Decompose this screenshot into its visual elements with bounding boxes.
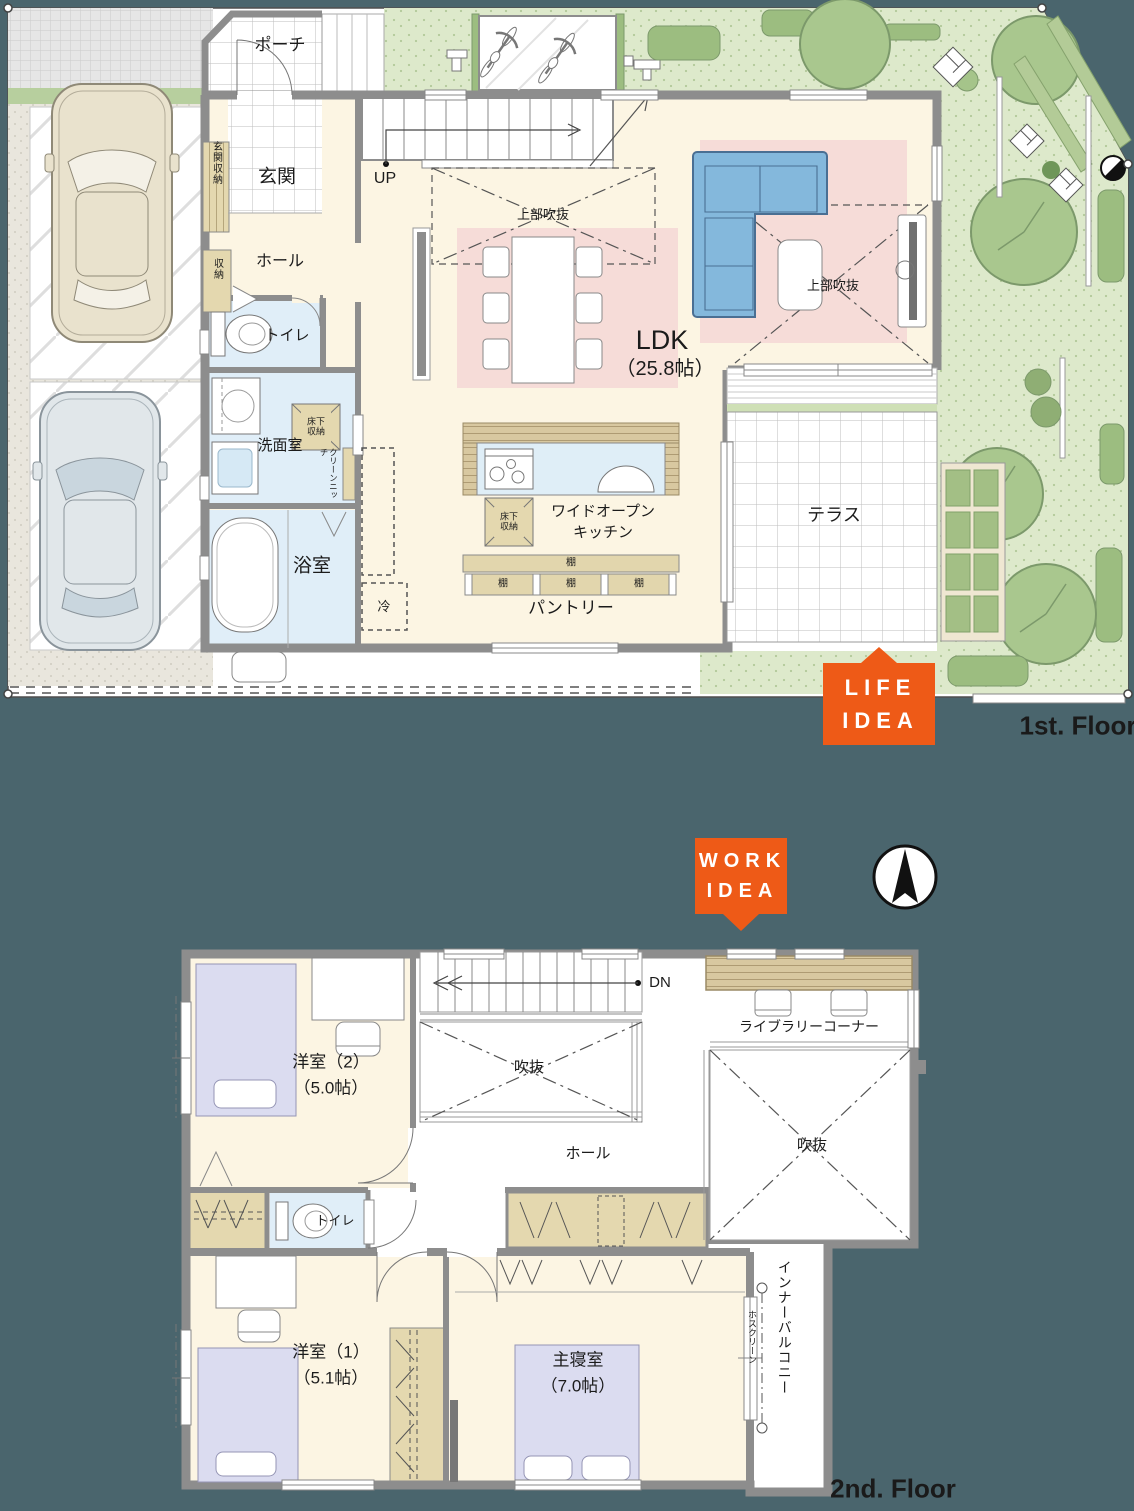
approach-steps	[322, 14, 384, 95]
floor1-caption: 1st. Floor	[1019, 711, 1134, 742]
stairs-up-label: UP	[374, 170, 396, 188]
master-tv-board	[450, 1400, 458, 1482]
entrance-tile	[228, 97, 322, 213]
underfloor-storage-label-2: 床下収納	[498, 512, 520, 533]
master-name-label: 主寝室	[553, 1352, 604, 1371]
vegetable-beds	[941, 463, 1005, 641]
floor2-caption: 2nd. Floor	[830, 1474, 956, 1505]
washing-machine	[212, 378, 260, 434]
hall-label: ホール	[256, 253, 304, 271]
staircase-floor2	[420, 952, 642, 1020]
bedroom1-name-label: 洋室（1）	[292, 1344, 369, 1363]
library-corner-label: ライブラリーコーナー	[739, 1019, 879, 1034]
upper-void-label-living: 上部吹抜	[807, 279, 859, 293]
ldk-size-label: （25.8帖）	[616, 358, 715, 380]
shelf-label: 棚	[566, 579, 576, 590]
entrance-storage-label: 玄関収納	[211, 141, 222, 233]
car-top-view-1	[45, 84, 179, 342]
floorplan-drawing	[0, 0, 1134, 1511]
life-idea-pointer-icon	[861, 647, 897, 663]
work-idea-line1: WORK	[696, 850, 786, 873]
wash-basin	[212, 442, 258, 494]
life-idea-line1: LIFE	[842, 675, 917, 701]
bedroom2-name-label: 洋室（2）	[292, 1054, 369, 1073]
work-idea-badge: WORK IDEA	[695, 838, 787, 914]
void-right-label: 吹抜	[797, 1138, 827, 1155]
washroom-label: 洗面室	[257, 438, 302, 455]
bedroom2-size-label: （5.0帖）	[294, 1080, 369, 1099]
terrace-label: テラス	[807, 506, 861, 526]
car-top-view-2	[33, 392, 167, 650]
toilet-label: トイレ	[264, 328, 309, 345]
shelf-label: 棚	[634, 579, 644, 590]
shelf-label: 棚	[498, 579, 508, 590]
void-left-label: 吹抜	[514, 1060, 544, 1077]
bed-bedroom2	[196, 964, 296, 1116]
bed-bedroom1	[198, 1348, 298, 1482]
life-idea-line2: IDEA	[839, 708, 919, 734]
terrace-sliding-door	[744, 364, 932, 376]
storage-label: 収納	[212, 258, 223, 304]
compass-icon	[874, 846, 936, 908]
ldk-name-label: LDK	[636, 326, 689, 356]
porch-label: ポーチ	[255, 37, 306, 56]
fridge-label: 冷	[377, 600, 390, 614]
walkin-closet	[390, 1328, 446, 1485]
underfloor-storage-label: 床下収納	[305, 417, 327, 438]
shelf-label: 棚	[566, 558, 576, 569]
work-idea-line2: IDEA	[704, 880, 779, 903]
toilet-fixture	[211, 312, 272, 356]
kitchen-label-line1: ワイドオープン	[551, 504, 655, 521]
first-floor-plan	[4, 0, 1132, 703]
stairs-down-label: DN	[649, 975, 671, 992]
hall2-label: ホール	[565, 1146, 610, 1163]
life-idea-badge: LIFE IDEA	[823, 663, 935, 745]
terrace-side-door	[721, 442, 733, 602]
clean-niche-label: クリーンニッチ	[319, 448, 338, 500]
kitchen-label-line2: キッチン	[573, 525, 633, 542]
work-idea-pointer-icon	[723, 914, 759, 931]
coffee-table	[778, 240, 822, 310]
pantry-label: パントリー	[528, 600, 614, 619]
hall-closet	[507, 1192, 707, 1248]
floorplan-canvas: ポーチ 玄関 玄関収納 収納 ホール トイレ 洗面室 床下収納 クリーンニッチ …	[0, 0, 1134, 1511]
upper-void-label-dining: 上部吹抜	[517, 208, 569, 222]
closet-bottom-left	[190, 1192, 266, 1250]
inner-balcony-label: インナーバルコニー	[776, 1260, 791, 1460]
toilet2-label: トイレ	[315, 1214, 354, 1228]
bedroom1-size-label: （5.1帖）	[294, 1370, 369, 1389]
tv-board	[896, 215, 926, 327]
wall-step-out	[914, 1060, 926, 1074]
clean-niche-cabinet	[343, 448, 355, 500]
entrance-label: 玄関	[258, 168, 296, 189]
master-size-label: （7.0帖）	[541, 1378, 616, 1397]
kitchen-counter	[463, 423, 679, 495]
outdoor-step	[232, 652, 286, 682]
bathroom-label: 浴室	[293, 557, 331, 578]
bicycle-parking	[471, 14, 624, 92]
staircase-floor1	[362, 96, 648, 168]
drying-pole-label: ホスクリーン	[746, 1310, 756, 1410]
